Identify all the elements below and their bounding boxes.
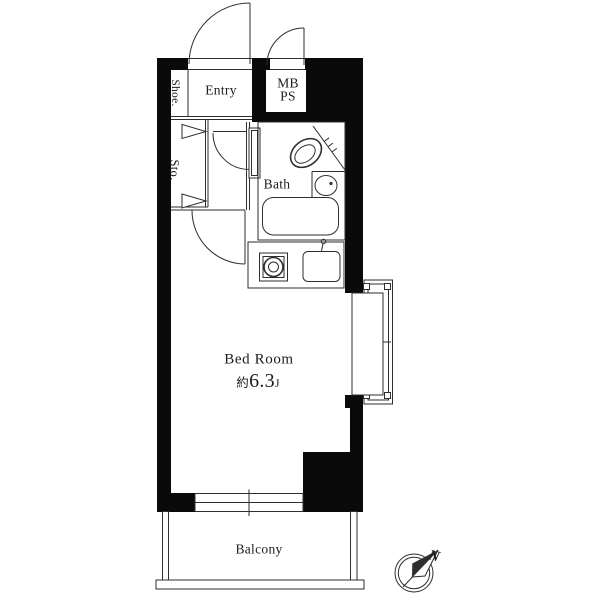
- kitchen-sink-icon: [303, 239, 340, 281]
- floor-plan: Shoe. Entry MB PS Sto. Bath Bed Room 約6.…: [0, 0, 600, 600]
- bathtub-icon: [263, 198, 339, 236]
- stove-burner-icon: [260, 253, 288, 281]
- pipe-space-label: PS: [277, 90, 299, 103]
- toilet-tank-shelf: [313, 126, 345, 170]
- bedroom-label: Bed Room: [224, 353, 293, 368]
- toilet-icon: [285, 133, 327, 174]
- bedroom-area-prefix: 約: [236, 376, 249, 390]
- bath-door: [213, 128, 260, 178]
- storage-marker-icon: [182, 125, 206, 209]
- shoe-cabinet-label: Shoe.: [168, 79, 180, 106]
- mbps-label: MB PS: [277, 78, 299, 103]
- kitchen-counter: [248, 239, 344, 288]
- bedroom-door-arc: [192, 211, 245, 265]
- sliding-window: [195, 490, 303, 517]
- bedroom-area-unit: J: [275, 378, 280, 390]
- entry-door-arc: [189, 3, 250, 64]
- storage-label: Sto.: [168, 160, 181, 181]
- bedroom-area-label: 約6.3J: [236, 371, 280, 391]
- washbasin-icon: [315, 176, 337, 196]
- bath-label: Bath: [264, 177, 291, 191]
- bedroom-area-value: 6.3: [249, 370, 275, 392]
- entry-label: Entry: [205, 83, 237, 97]
- balcony-label: Balcony: [235, 542, 282, 556]
- floor-plan-drawing: [0, 0, 600, 600]
- bay-window: [352, 280, 393, 404]
- mbps-door-arc: [267, 28, 304, 65]
